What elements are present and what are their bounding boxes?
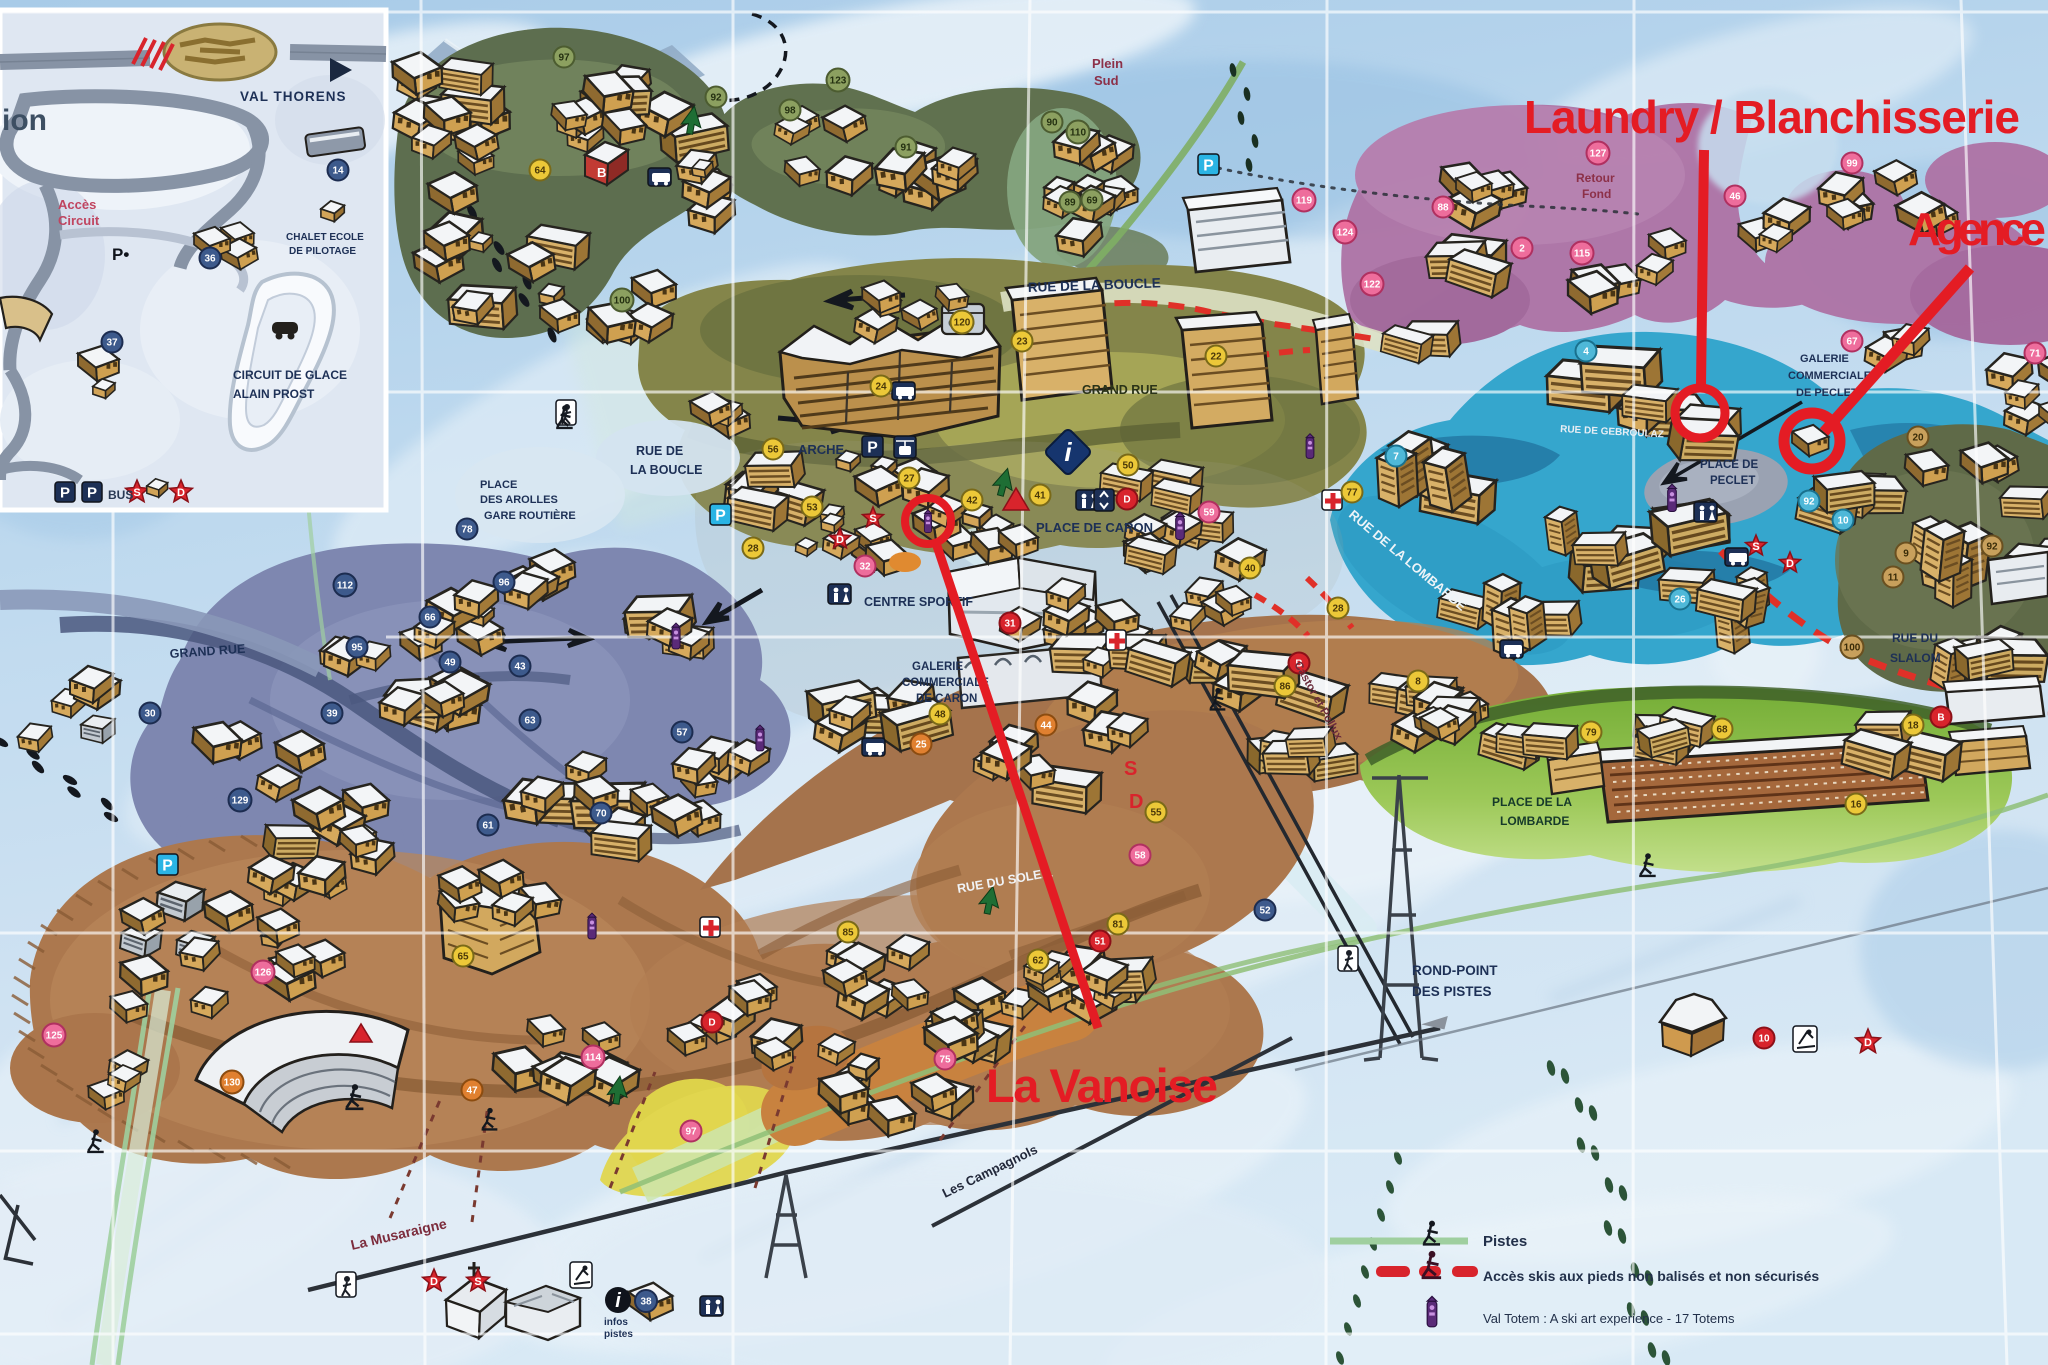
svg-text:Pistes: Pistes: [1483, 1233, 1527, 1250]
svg-text:GARE ROUTIÈRE: GARE ROUTIÈRE: [484, 509, 576, 522]
svg-text:123: 123: [830, 76, 847, 87]
svg-text:92: 92: [710, 93, 722, 104]
svg-text:ROND-POINT: ROND-POINT: [1412, 963, 1498, 978]
svg-text:i: i: [615, 1290, 621, 1312]
svg-text:79: 79: [1585, 728, 1597, 739]
svg-text:49: 49: [444, 658, 456, 669]
svg-text:P: P: [60, 485, 70, 502]
svg-text:PLACE DE LA: PLACE DE LA: [1492, 795, 1572, 809]
svg-text:pistes: pistes: [604, 1329, 633, 1340]
svg-text:GALERIE: GALERIE: [1800, 353, 1849, 365]
svg-text:41: 41: [1034, 491, 1046, 502]
svg-text:37: 37: [106, 338, 118, 349]
svg-text:Retour: Retour: [1576, 171, 1615, 185]
svg-text:78: 78: [461, 525, 473, 536]
svg-text:GALERIE: GALERIE: [912, 661, 963, 673]
svg-text:P: P: [1203, 157, 1214, 174]
svg-text:B: B: [1937, 713, 1944, 724]
svg-text:127: 127: [1590, 149, 1607, 160]
svg-text:92: 92: [1986, 542, 1998, 553]
svg-text:11: 11: [1888, 573, 1899, 584]
svg-text:DE PILOTAGE: DE PILOTAGE: [289, 246, 356, 257]
svg-text:50: 50: [1122, 461, 1134, 472]
svg-text:i: i: [1064, 437, 1072, 467]
svg-text:58: 58: [1134, 851, 1146, 862]
svg-text:68: 68: [1716, 725, 1728, 736]
svg-text:97: 97: [685, 1127, 697, 1138]
svg-text:122: 122: [1364, 280, 1381, 291]
svg-text:130: 130: [224, 1078, 241, 1089]
svg-text:81: 81: [1112, 920, 1124, 931]
svg-text:Sud: Sud: [1094, 73, 1119, 88]
svg-text:64: 64: [534, 166, 546, 177]
svg-text:67: 67: [1846, 337, 1858, 348]
svg-text:Circuit: Circuit: [58, 213, 100, 228]
svg-text:44: 44: [1040, 721, 1052, 732]
svg-text:B: B: [597, 165, 606, 180]
svg-text:VAL THORENS: VAL THORENS: [240, 89, 347, 104]
svg-text:Agence: Agence: [1908, 203, 2046, 255]
svg-text:115: 115: [1574, 249, 1591, 260]
svg-text:47: 47: [466, 1086, 478, 1097]
svg-text:124: 124: [1337, 228, 1354, 239]
svg-text:85: 85: [842, 928, 854, 939]
svg-text:38: 38: [640, 1297, 652, 1308]
svg-text:Val Totem : A ski art experien: Val Totem : A ski art experience - 17 To…: [1483, 1311, 1735, 1326]
svg-text:26: 26: [1674, 595, 1686, 606]
svg-text:2: 2: [1519, 244, 1525, 255]
svg-text:30: 30: [144, 709, 156, 720]
svg-text:23: 23: [1016, 337, 1028, 348]
svg-text:65: 65: [457, 952, 469, 963]
svg-text:P: P: [87, 485, 97, 502]
svg-text:16: 16: [1850, 800, 1862, 811]
svg-text:P: P: [162, 857, 173, 874]
svg-text:P: P: [715, 507, 726, 524]
svg-text:48: 48: [934, 710, 946, 721]
svg-text:100: 100: [614, 296, 631, 307]
svg-text:D: D: [1129, 791, 1143, 813]
svg-text:LOMBARDE: LOMBARDE: [1500, 814, 1569, 828]
svg-text:COMMERCIALE: COMMERCIALE: [902, 677, 989, 689]
svg-text:52: 52: [1259, 906, 1271, 917]
svg-text:DES AROLLES: DES AROLLES: [480, 494, 558, 506]
svg-text:18: 18: [1907, 721, 1919, 732]
svg-text:32: 32: [859, 562, 871, 573]
svg-text:D: D: [1786, 558, 1794, 570]
svg-text:86: 86: [1279, 682, 1291, 693]
svg-text:69: 69: [1086, 196, 1098, 207]
svg-text:PLACE DE CARON: PLACE DE CARON: [1036, 520, 1153, 535]
svg-text:25: 25: [915, 740, 927, 751]
svg-text:36: 36: [204, 254, 216, 265]
svg-text:53: 53: [806, 503, 818, 514]
svg-text:56: 56: [767, 445, 779, 456]
svg-text:RUE DU: RUE DU: [1892, 631, 1938, 645]
svg-text:100: 100: [1844, 643, 1861, 654]
svg-text:22: 22: [1210, 352, 1222, 363]
svg-text:114: 114: [585, 1053, 602, 1064]
svg-text:PLACE: PLACE: [480, 479, 517, 491]
svg-text:4: 4: [1583, 347, 1589, 358]
svg-text:RUE DE: RUE DE: [636, 444, 683, 458]
svg-text:DE CARON: DE CARON: [916, 693, 977, 705]
svg-text:28: 28: [1332, 604, 1344, 615]
svg-text:PLACE DE: PLACE DE: [1700, 459, 1758, 471]
svg-text:Accès skis aux pieds non balis: Accès skis aux pieds non balisés et non …: [1483, 1268, 1819, 1284]
svg-text:7: 7: [1393, 452, 1399, 463]
svg-text:42: 42: [966, 496, 978, 507]
svg-text:9: 9: [1903, 549, 1909, 560]
svg-text:75: 75: [939, 1055, 951, 1066]
svg-text:59: 59: [1203, 508, 1215, 519]
svg-text:129: 129: [232, 796, 249, 807]
svg-text:40: 40: [1244, 564, 1256, 575]
svg-text:126: 126: [255, 968, 272, 979]
svg-text:CIRCUIT DE GLACE: CIRCUIT DE GLACE: [233, 368, 347, 382]
svg-text:112: 112: [337, 581, 354, 592]
svg-text:D: D: [177, 487, 185, 499]
svg-text:GRAND RUE: GRAND RUE: [1082, 383, 1158, 397]
svg-text:La Vanoise: La Vanoise: [986, 1059, 1218, 1112]
svg-text:S: S: [133, 487, 140, 499]
svg-text:14: 14: [332, 166, 344, 177]
svg-text:PECLET: PECLET: [1710, 475, 1755, 487]
svg-text:BUS: BUS: [108, 488, 133, 502]
svg-text:119: 119: [1296, 196, 1313, 207]
svg-text:Fond: Fond: [1582, 187, 1611, 201]
svg-text:71: 71: [2029, 349, 2041, 360]
svg-text:D: D: [708, 1018, 715, 1029]
svg-text:P: P: [867, 439, 878, 456]
svg-text:66: 66: [424, 613, 436, 624]
svg-text:110: 110: [1070, 128, 1087, 139]
svg-text:D: D: [1864, 1037, 1872, 1049]
svg-text:57: 57: [676, 728, 688, 739]
svg-text:55: 55: [1150, 808, 1162, 819]
svg-text:10: 10: [1758, 1034, 1770, 1045]
svg-text:COMMERCIALE: COMMERCIALE: [1788, 370, 1871, 382]
svg-text:LA BOUCLE: LA BOUCLE: [630, 463, 702, 477]
svg-text:61: 61: [482, 821, 494, 832]
svg-text:Plein: Plein: [1092, 56, 1123, 71]
svg-text:125: 125: [46, 1031, 63, 1042]
svg-text:D: D: [430, 1276, 438, 1288]
svg-text:62: 62: [1032, 956, 1044, 967]
svg-text:S: S: [1752, 541, 1759, 553]
svg-text:Laundry / Blanchisserie: Laundry / Blanchisserie: [1524, 91, 2020, 143]
svg-text:89: 89: [1064, 198, 1076, 209]
svg-text:97: 97: [558, 53, 570, 64]
svg-text:CHALET ECOLE: CHALET ECOLE: [286, 232, 364, 243]
svg-text:98: 98: [784, 106, 796, 117]
svg-text:91: 91: [900, 143, 912, 154]
svg-text:46: 46: [1729, 192, 1741, 203]
svg-text:31: 31: [1004, 619, 1016, 630]
svg-text:95: 95: [351, 643, 363, 654]
svg-text:96: 96: [498, 578, 510, 589]
svg-text:Accès: Accès: [58, 197, 96, 212]
svg-text:77: 77: [1346, 488, 1358, 499]
svg-text:P•: P•: [112, 245, 129, 264]
svg-text:SLALOM: SLALOM: [1890, 651, 1941, 665]
svg-text:S: S: [474, 1276, 481, 1288]
svg-text:10: 10: [1837, 516, 1849, 527]
svg-text:S: S: [869, 513, 876, 525]
svg-text:ARCHE: ARCHE: [798, 442, 845, 457]
svg-text:ion: ion: [2, 104, 47, 137]
svg-text:27: 27: [903, 474, 915, 485]
svg-text:8: 8: [1415, 677, 1421, 688]
svg-text:70: 70: [595, 809, 607, 820]
svg-text:51: 51: [1094, 937, 1106, 948]
svg-text:99: 99: [1846, 159, 1858, 170]
svg-text:20: 20: [1912, 433, 1924, 444]
svg-text:24: 24: [875, 382, 887, 393]
svg-text:39: 39: [326, 709, 338, 720]
svg-text:90: 90: [1046, 118, 1058, 129]
svg-text:88: 88: [1437, 203, 1449, 214]
svg-text:28: 28: [747, 544, 759, 555]
svg-text:D: D: [836, 534, 844, 546]
svg-text:DES PISTES: DES PISTES: [1412, 984, 1492, 999]
svg-text:ALAIN PROST: ALAIN PROST: [233, 387, 315, 401]
svg-text:63: 63: [524, 716, 536, 727]
svg-text:infos: infos: [604, 1317, 628, 1328]
svg-text:43: 43: [514, 662, 526, 673]
svg-text:S: S: [1124, 758, 1137, 780]
svg-text:120: 120: [954, 318, 971, 329]
svg-text:92: 92: [1803, 497, 1815, 508]
svg-text:D: D: [1123, 495, 1130, 506]
